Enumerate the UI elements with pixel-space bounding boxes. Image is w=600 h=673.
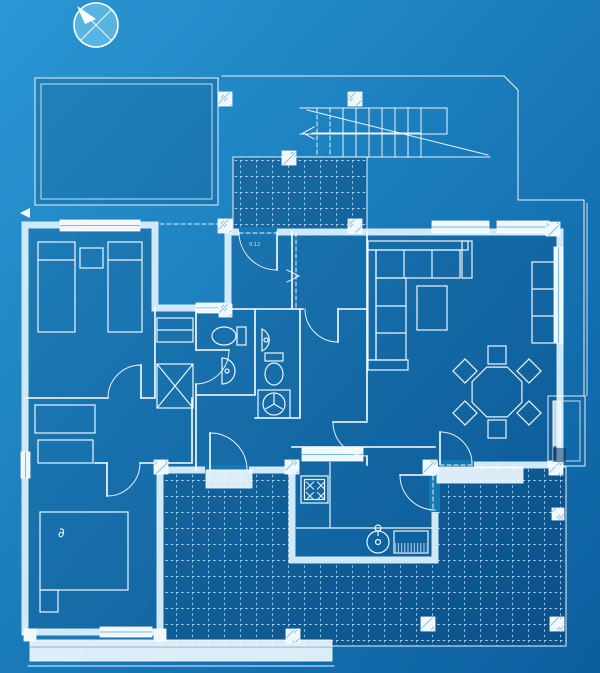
column-marker	[550, 617, 564, 631]
column-marker	[282, 151, 296, 165]
column-marker	[546, 222, 560, 236]
entry-dimension-label: 9.12	[249, 242, 260, 248]
window	[554, 247, 563, 343]
wall-corner-pad	[24, 629, 36, 641]
column-marker	[285, 460, 299, 474]
window	[21, 452, 30, 478]
garage	[35, 78, 232, 205]
column-marker	[348, 92, 362, 106]
column-marker	[552, 508, 564, 520]
window	[100, 627, 152, 637]
column-marker	[348, 219, 362, 233]
terrace-step	[437, 467, 523, 483]
wall-corner-pad	[154, 629, 166, 641]
window	[497, 221, 549, 233]
column-marker	[154, 460, 168, 474]
column-marker	[218, 92, 232, 106]
compass-rose-icon	[74, 3, 118, 47]
column-marker	[549, 461, 563, 475]
bed-lamp-glyph: ∂	[58, 526, 65, 541]
entry-porch	[233, 157, 367, 233]
column-marker	[219, 304, 232, 317]
kitchen-pass-through	[302, 448, 363, 461]
column-marker	[421, 617, 435, 631]
column-marker	[218, 219, 232, 233]
column-marker	[423, 460, 437, 474]
floor-plan-drawing: 9.12	[0, 0, 600, 673]
window	[60, 220, 140, 231]
window	[432, 221, 489, 233]
terrace-step	[206, 470, 252, 488]
blueprint-canvas: 9.12	[0, 0, 600, 673]
column-marker	[286, 629, 300, 643]
